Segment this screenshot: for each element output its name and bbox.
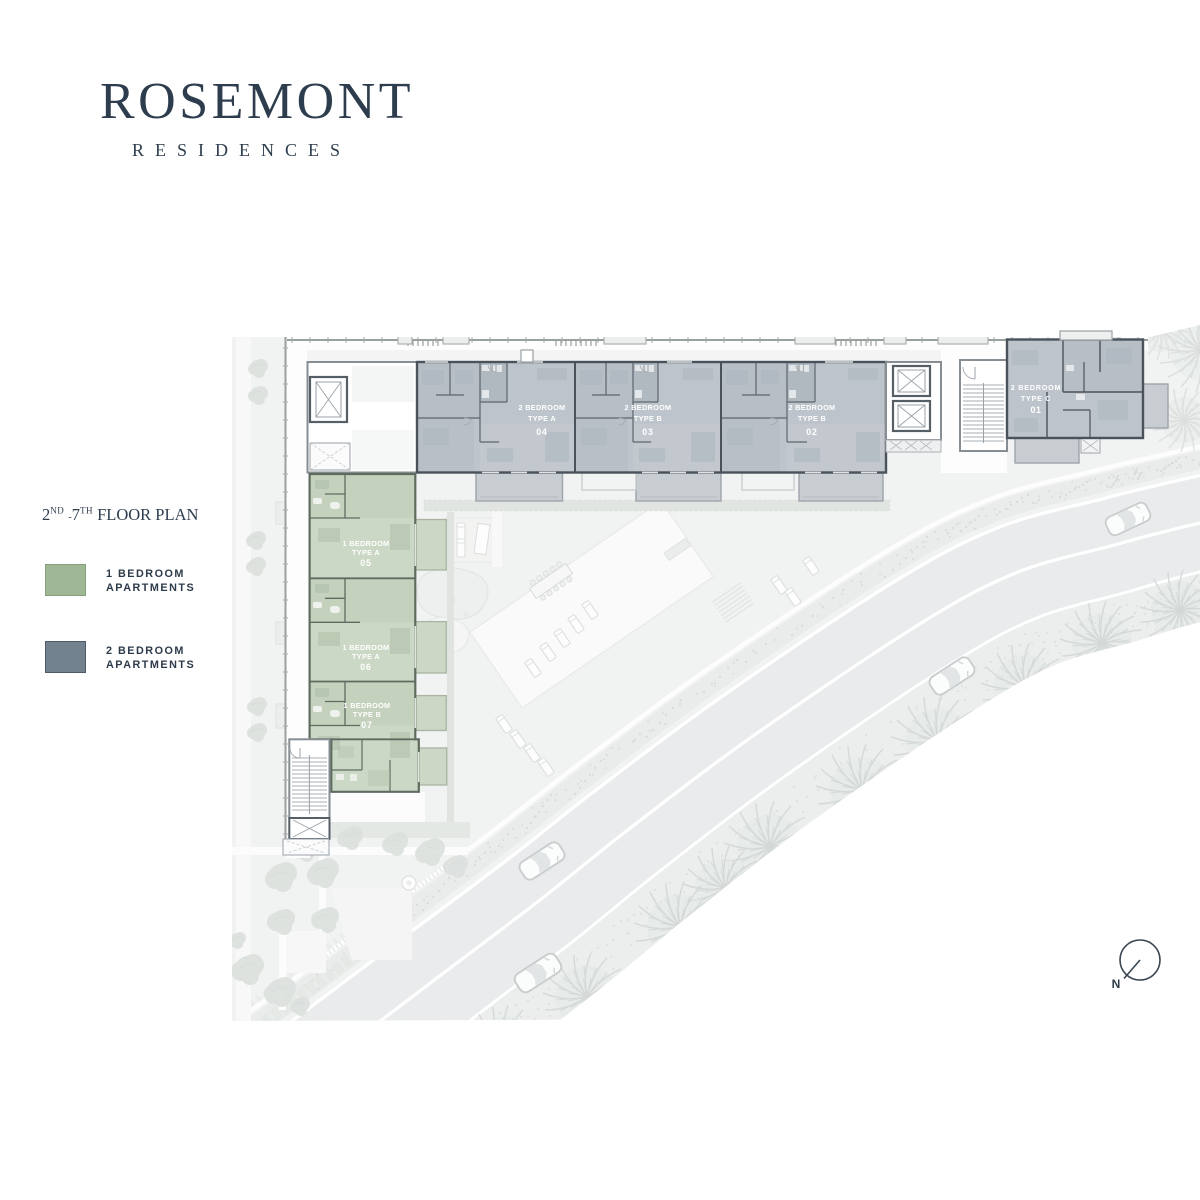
svg-text:2 BEDROOM: 2 BEDROOM [1011,383,1062,392]
svg-text:TYPE B: TYPE B [798,414,826,423]
svg-text:04: 04 [536,427,547,437]
svg-text:TYPE B: TYPE B [634,414,662,423]
svg-text:1 BEDROOM: 1 BEDROOM [343,539,390,548]
svg-text:TYPE C: TYPE C [1021,394,1052,403]
svg-text:TYPE A: TYPE A [528,414,556,423]
svg-text:2 BEDROOM: 2 BEDROOM [625,403,672,412]
svg-text:2 BEDROOM: 2 BEDROOM [789,403,836,412]
svg-text:06: 06 [360,662,371,672]
svg-text:TYPE A: TYPE A [352,652,380,661]
svg-text:02: 02 [806,427,817,437]
svg-text:TYPE B: TYPE B [353,710,381,719]
svg-text:2 BEDROOM: 2 BEDROOM [519,403,566,412]
svg-text:N: N [1112,977,1121,991]
svg-text:03: 03 [642,427,653,437]
svg-text:01: 01 [1031,405,1042,415]
svg-text:07: 07 [361,720,372,730]
svg-text:05: 05 [360,558,371,568]
svg-text:1 BEDROOM: 1 BEDROOM [344,701,391,710]
svg-text:1 BEDROOM: 1 BEDROOM [343,643,390,652]
svg-text:TYPE A: TYPE A [352,548,380,557]
